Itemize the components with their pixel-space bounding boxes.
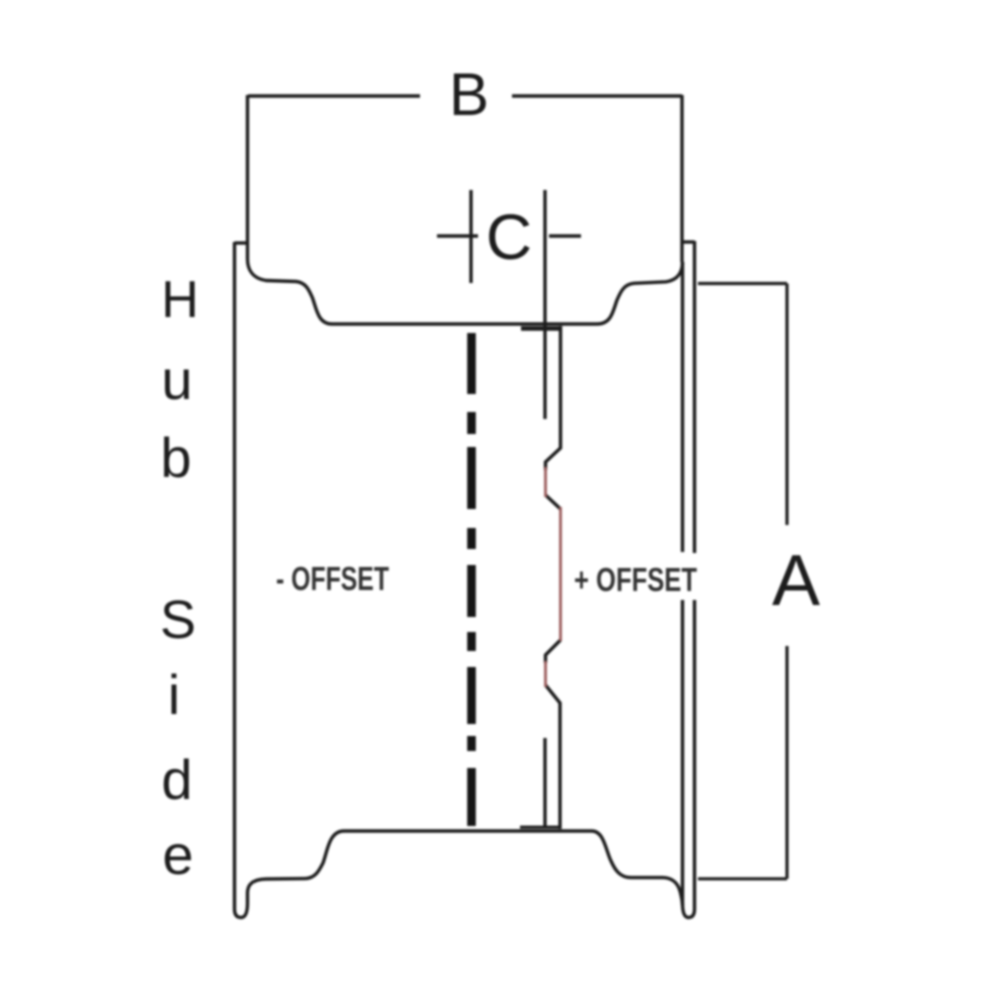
svg-text:u: u xyxy=(161,348,192,411)
svg-text:b: b xyxy=(160,426,191,489)
svg-text:B: B xyxy=(449,61,489,128)
svg-text:C: C xyxy=(486,201,532,273)
svg-text:d: d xyxy=(161,748,192,811)
svg-text:H: H xyxy=(161,271,199,329)
svg-text:A: A xyxy=(772,541,820,621)
svg-text:S: S xyxy=(160,590,196,650)
svg-text:- OFFSET: - OFFSET xyxy=(276,560,389,597)
svg-text:e: e xyxy=(162,823,193,886)
svg-text:+ OFFSET: + OFFSET xyxy=(574,561,697,598)
svg-text:i: i xyxy=(168,663,180,726)
